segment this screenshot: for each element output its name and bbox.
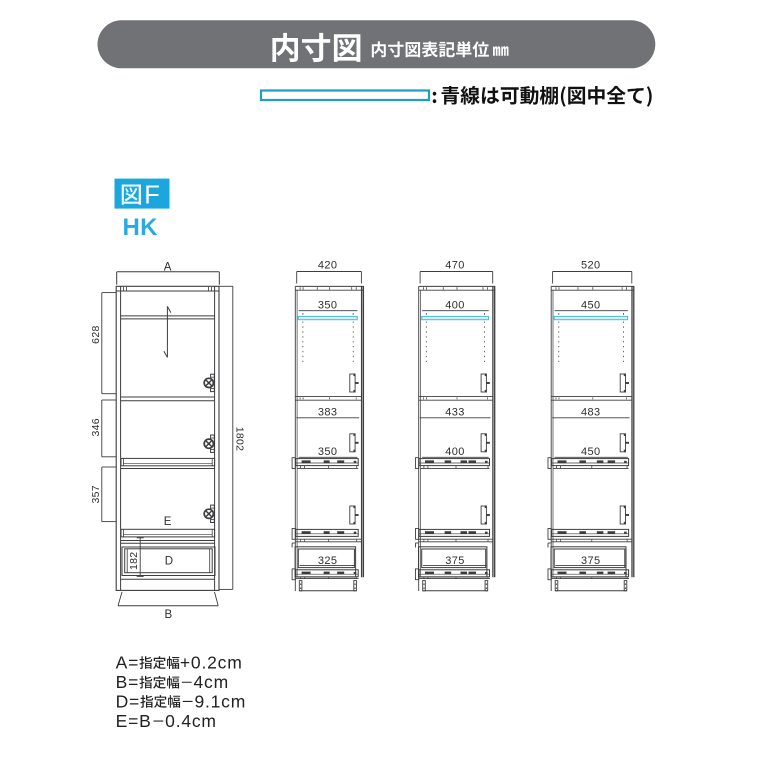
- svg-text:F: F: [144, 181, 160, 209]
- svg-text:420: 420: [318, 259, 338, 271]
- svg-text:470: 470: [445, 259, 465, 271]
- svg-text:450: 450: [581, 446, 601, 458]
- svg-text:D: D: [165, 555, 174, 567]
- svg-text:400: 400: [445, 299, 465, 311]
- svg-text:E=B: E=B: [116, 711, 152, 731]
- svg-text:483: 483: [581, 407, 601, 419]
- svg-text:D=: D=: [116, 691, 140, 711]
- svg-text:350: 350: [318, 299, 338, 311]
- svg-text:400: 400: [445, 446, 465, 458]
- svg-text:B=: B=: [116, 672, 140, 692]
- svg-text:350: 350: [318, 446, 338, 458]
- svg-text:B: B: [165, 609, 173, 621]
- svg-text:4cm: 4cm: [193, 672, 228, 692]
- svg-text:628: 628: [90, 325, 102, 343]
- svg-text:E: E: [164, 516, 172, 528]
- svg-text:1802: 1802: [233, 427, 245, 452]
- svg-text:375: 375: [445, 555, 465, 567]
- svg-text:A=: A=: [116, 653, 140, 673]
- svg-text:HK: HK: [123, 214, 159, 241]
- svg-text:182: 182: [128, 552, 140, 570]
- svg-text:520: 520: [581, 259, 601, 271]
- svg-text:383: 383: [318, 407, 338, 419]
- svg-text:450: 450: [581, 299, 601, 311]
- svg-text:+0.2cm: +0.2cm: [180, 653, 243, 673]
- svg-text:357: 357: [90, 485, 102, 503]
- svg-text:325: 325: [318, 555, 338, 567]
- svg-text:9.1cm: 9.1cm: [194, 691, 246, 711]
- svg-text:0.4cm: 0.4cm: [165, 711, 217, 731]
- svg-text:433: 433: [445, 407, 465, 419]
- svg-text:375: 375: [581, 555, 601, 567]
- svg-text:346: 346: [90, 418, 102, 436]
